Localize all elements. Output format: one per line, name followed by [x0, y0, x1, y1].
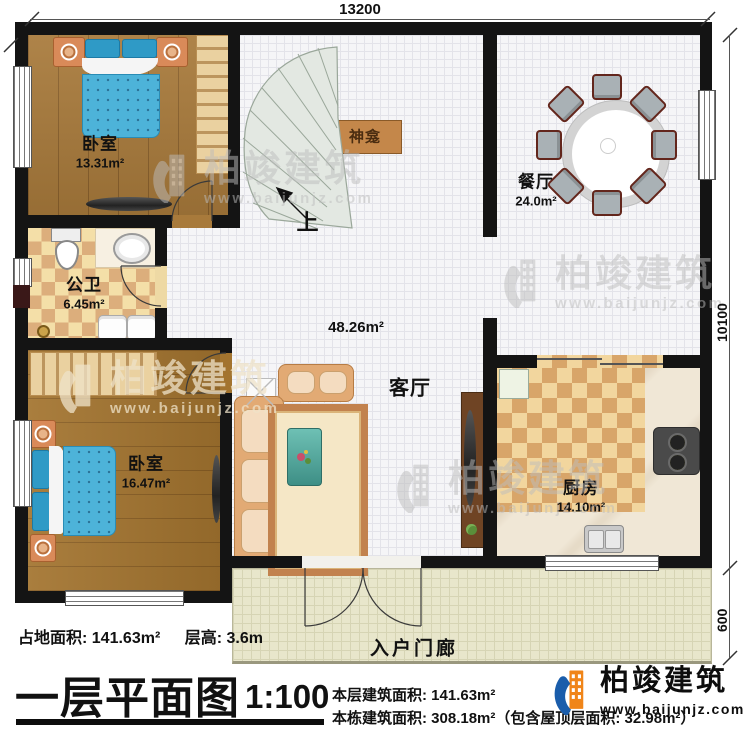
room-area: 24.0m²: [515, 194, 556, 209]
floor-area-line: 本层建筑面积: 141.63m²: [332, 684, 495, 705]
nightstand: [30, 534, 56, 562]
room-area: 13.31m²: [76, 156, 124, 171]
porch-label: 入户门廊: [370, 634, 458, 661]
room-name: 卧室: [76, 130, 124, 155]
window: [65, 590, 184, 606]
floor-plan-canvas: 神龛: [0, 0, 750, 740]
window: [13, 66, 32, 168]
double-bed: [82, 36, 158, 136]
dimension-height-main: 10100: [714, 262, 730, 342]
double-bed: [30, 446, 114, 534]
bedroom2-label: 卧室 16.47m²: [122, 450, 170, 491]
room-area: 16.47m²: [122, 476, 170, 491]
kitchen-sink: [584, 525, 624, 553]
plan-title: 一层平面图: [15, 662, 240, 726]
site-area: 占地面积: 141.63m²: [18, 630, 160, 647]
kitchen-label: 厨房 14.10m²: [557, 474, 605, 515]
bathroom-door-opening: [155, 266, 167, 308]
room-name: 神龛: [349, 126, 381, 147]
dining-chair: [592, 190, 622, 216]
site-stats-line: 占地面积: 141.63m² 层高: 3.6m: [18, 624, 263, 648]
wall-bedroom1-right: [228, 35, 240, 228]
bathroom-label: 公卫 6.45m²: [63, 271, 104, 312]
porch-floor: [232, 568, 712, 664]
room-area: 48.26m²: [328, 319, 384, 336]
wardrobe: [196, 35, 230, 174]
wardrobe: [30, 352, 157, 396]
floor-height: 层高: 3.6m: [185, 630, 263, 647]
sofa-top-section: [278, 364, 354, 402]
pillow: [32, 450, 50, 489]
pillow: [85, 39, 120, 58]
table-center: [600, 138, 616, 154]
wall-dining-left: [483, 35, 497, 237]
sink-basin: [588, 530, 604, 549]
wall-bathroom-bottom: [28, 338, 232, 350]
wall-kitchen-left: [483, 318, 497, 568]
lamp-icon: [35, 426, 52, 443]
nightstand: [156, 37, 188, 67]
living-label: 客厅: [389, 372, 431, 401]
living-area-label: 48.26m²: [328, 318, 384, 336]
flower-decor: [297, 453, 305, 461]
entrance-door-opening: [302, 556, 421, 568]
dimension-width: 13200: [310, 1, 410, 18]
sink-basin: [605, 530, 621, 549]
lamp-icon: [61, 44, 78, 61]
plan-scale: 1:100: [245, 678, 329, 716]
stove: [653, 427, 700, 475]
tv: [86, 197, 172, 211]
nightstand: [53, 37, 85, 67]
burner-icon: [668, 453, 687, 472]
window: [13, 420, 32, 507]
brand-logo: 柏竣建筑 www.baijunjz.com: [548, 664, 745, 720]
nightstand: [30, 420, 56, 448]
burner-icon: [668, 433, 687, 452]
room-name: 客厅: [389, 372, 431, 401]
dining-chair: [592, 74, 622, 100]
brand-name: 柏竣建筑: [600, 664, 745, 699]
sink: [113, 233, 151, 264]
sofa-cushion: [287, 371, 315, 394]
lamp-icon: [164, 44, 181, 61]
sofa-cushion: [319, 371, 347, 394]
bedroom2-door-opening: [220, 353, 232, 393]
plant-icon: [466, 524, 477, 535]
dining-label: 餐厅 24.0m²: [515, 168, 556, 209]
window: [545, 555, 659, 571]
stairs-up-text: 上: [296, 205, 319, 237]
brand-website: www.baijunjz.com: [600, 701, 745, 717]
pillow: [32, 492, 50, 531]
stairs-up-label: 上: [296, 205, 319, 237]
wall-top: [15, 22, 712, 35]
room-name: 厨房: [557, 474, 605, 499]
room-name: 公卫: [63, 271, 104, 296]
dining-chair: [536, 130, 562, 160]
room-name: 卧室: [122, 450, 170, 475]
bedroom1-door-opening: [172, 215, 212, 228]
brand-logo-icon: [548, 664, 594, 720]
fridge: [499, 369, 529, 399]
tv: [464, 410, 476, 506]
bedroom1-label: 卧室 13.31m²: [76, 130, 124, 171]
lamp-icon: [35, 540, 52, 557]
room-name: 入户门廊: [370, 634, 458, 661]
window: [13, 258, 32, 287]
high-window: [13, 285, 30, 308]
shrine-label: 神龛: [349, 126, 381, 147]
room-name: 餐厅: [515, 168, 556, 193]
room-area: 14.10m²: [557, 500, 605, 515]
brand-text: 柏竣建筑 www.baijunjz.com: [600, 664, 745, 720]
title-underline: [16, 719, 324, 725]
mattress: [63, 446, 116, 536]
kitchen-slider-opening: [537, 355, 663, 368]
toilet-brush-icon: [37, 325, 50, 338]
dining-chair: [651, 130, 677, 160]
dimension-line-top: [30, 19, 710, 20]
coffee-table: [287, 428, 322, 486]
dimension-height-porch: 600: [714, 586, 730, 632]
window: [698, 90, 716, 180]
mattress: [82, 74, 160, 138]
pillow: [122, 39, 157, 58]
room-area: 6.45m²: [63, 297, 104, 312]
